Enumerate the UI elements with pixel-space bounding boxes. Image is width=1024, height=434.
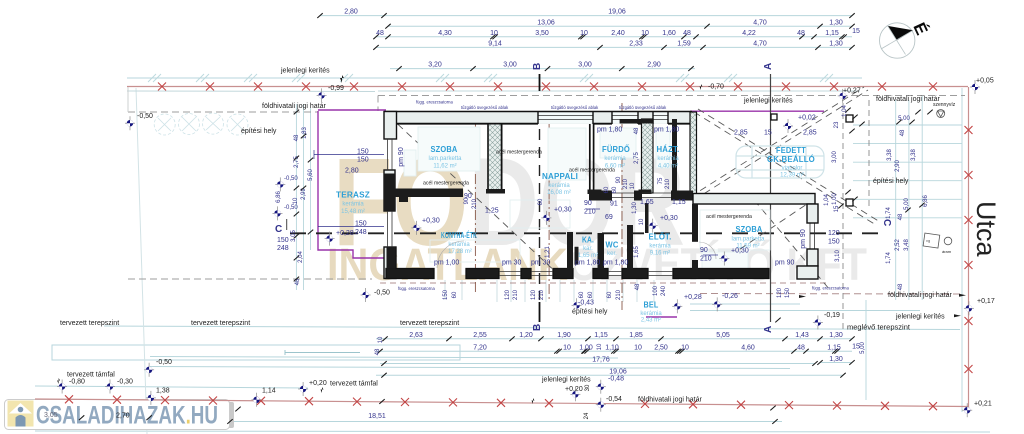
svg-text:60: 60 — [604, 186, 610, 193]
svg-text:120: 120 — [505, 289, 511, 300]
svg-text:60: 60 — [607, 291, 613, 298]
svg-text:földhivatali jogi határ: földhivatali jogi határ — [262, 103, 326, 110]
svg-text:60: 60 — [538, 198, 544, 205]
svg-text:tűzgátló üvegezésű ablak: tűzgátló üvegezésű ablak — [461, 105, 509, 110]
svg-text:SZOBA: SZOBA — [431, 145, 458, 154]
svg-text:földhivatali jogi határ: földhivatali jogi határ — [638, 397, 702, 404]
svg-text:1,65: 1,65 — [640, 199, 654, 206]
svg-text:BEL: BEL — [644, 301, 659, 310]
svg-text:acél mestergerenda: acél mestergerenda — [706, 214, 752, 220]
svg-text:lam.parketta: lam.parketta — [428, 156, 462, 162]
svg-text:15: 15 — [764, 130, 772, 137]
svg-text:2,63: 2,63 — [409, 332, 423, 339]
svg-text:1,30: 1,30 — [632, 202, 638, 214]
svg-text:75: 75 — [658, 177, 664, 184]
svg-text:-0,54: -0,54 — [606, 396, 622, 403]
svg-text:vg: vg — [926, 238, 930, 243]
svg-text:pm 1,80: pm 1,80 — [597, 127, 622, 134]
svg-text:150: 150 — [785, 287, 791, 298]
svg-text:kerámia: kerámia — [548, 183, 570, 189]
svg-text:-0,50: -0,50 — [284, 205, 298, 211]
svg-text:5,05: 5,05 — [716, 332, 730, 339]
svg-text:kerámia: kerámia — [649, 244, 671, 250]
svg-text:11,62 m²: 11,62 m² — [433, 164, 456, 170]
svg-text:150: 150 — [277, 237, 289, 244]
svg-text:1,43: 1,43 — [795, 332, 809, 339]
svg-text:69: 69 — [605, 214, 613, 221]
svg-text:pm 30: pm 30 — [531, 260, 551, 267]
svg-text:-0,99: -0,99 — [328, 85, 344, 92]
svg-text:+0,05: +0,05 — [976, 78, 994, 85]
svg-text:3,00: 3,00 — [832, 151, 838, 163]
svg-text:210: 210 — [472, 198, 478, 209]
svg-text:120: 120 — [777, 287, 783, 298]
svg-text:meglévő terepszint: meglévő terepszint — [847, 323, 911, 332]
svg-text:1,00: 1,00 — [579, 345, 593, 352]
svg-text:10: 10 — [630, 182, 636, 189]
svg-text:210: 210 — [513, 289, 519, 300]
svg-text:lam.parketta: lam.parketta — [731, 237, 765, 243]
svg-text:2,04: 2,04 — [298, 251, 304, 263]
svg-text:240: 240 — [661, 285, 667, 296]
svg-text:210: 210 — [700, 256, 712, 263]
svg-text:1,38: 1,38 — [156, 388, 170, 395]
svg-text:150: 150 — [443, 289, 449, 300]
svg-text:függ. ereszcsatorna: függ. ereszcsatorna — [398, 286, 435, 291]
svg-text:60: 60 — [588, 291, 594, 298]
svg-text:tűzgátló üvegezésű ablak: tűzgátló üvegezésű ablak — [551, 105, 599, 110]
svg-text:5,60: 5,60 — [308, 169, 314, 181]
svg-text:248: 248 — [277, 245, 289, 252]
svg-text:120: 120 — [531, 289, 537, 300]
svg-text:földhivatali jogi határ: földhivatali jogi határ — [888, 292, 952, 299]
svg-text:pm 90: pm 90 — [775, 260, 795, 267]
svg-text:30: 30 — [585, 384, 591, 391]
svg-text:+0,28: +0,28 — [336, 230, 354, 237]
svg-text:pm 1,80: pm 1,80 — [603, 260, 628, 267]
svg-text:+0,27: +0,27 — [843, 88, 861, 95]
svg-text:3,48: 3,48 — [904, 239, 910, 251]
svg-text:210: 210 — [665, 178, 671, 189]
svg-text:48: 48 — [898, 283, 904, 290]
svg-text:1,00: 1,00 — [832, 193, 838, 205]
svg-text:48: 48 — [797, 345, 805, 352]
svg-text:2,40: 2,40 — [611, 30, 625, 37]
svg-text:-0,50: -0,50 — [284, 176, 298, 182]
svg-text:4,60: 4,60 — [741, 345, 755, 352]
svg-text:tervezett terepszint: tervezett terepszint — [60, 320, 119, 327]
svg-text:C: C — [881, 219, 892, 226]
svg-text:1,74: 1,74 — [886, 207, 892, 219]
svg-text:1,30: 1,30 — [829, 332, 843, 339]
svg-text:kar.: kar. — [583, 246, 593, 252]
svg-text:150: 150 — [357, 157, 369, 164]
svg-text:HÁZT.: HÁZT. — [657, 145, 680, 154]
svg-text:2,80: 2,80 — [345, 168, 359, 175]
svg-text:120: 120 — [828, 230, 840, 237]
svg-text:pm 1,80: pm 1,80 — [575, 260, 600, 267]
svg-text:3,05: 3,05 — [44, 412, 58, 419]
svg-text:17,28 m²: 17,28 m² — [448, 249, 472, 255]
svg-text:KONYHA-ÉTK: KONYHA-ÉTK — [441, 231, 477, 240]
svg-text:10: 10 — [597, 343, 603, 350]
svg-text:1,30: 1,30 — [829, 41, 843, 48]
svg-text:5,00: 5,00 — [860, 342, 866, 354]
svg-text:-0,70: -0,70 — [708, 84, 724, 91]
svg-text:1,25: 1,25 — [485, 208, 499, 215]
svg-text:kerámia: kerámia — [448, 242, 470, 248]
svg-text:10: 10 — [293, 197, 299, 204]
svg-text:24: 24 — [584, 412, 590, 419]
svg-text:90: 90 — [464, 197, 470, 204]
svg-text:10: 10 — [641, 30, 649, 37]
svg-text:4,70: 4,70 — [753, 19, 767, 26]
svg-text:1,04: 1,04 — [824, 194, 830, 206]
svg-text:viacolor: viacolor — [782, 166, 803, 172]
svg-text:48: 48 — [797, 30, 805, 37]
svg-text:-0,50: -0,50 — [137, 113, 153, 120]
svg-text:kerámia: kerámia — [342, 202, 364, 208]
svg-text:1,59: 1,59 — [677, 41, 691, 48]
svg-text:10: 10 — [634, 345, 642, 352]
svg-text:4,22: 4,22 — [742, 30, 756, 37]
svg-text:1,30: 1,30 — [829, 19, 843, 26]
svg-text:FEDETT: FEDETT — [776, 146, 806, 155]
svg-text:FÜRDŐ: FÜRDŐ — [602, 145, 630, 154]
svg-text:2,90: 2,90 — [895, 160, 901, 172]
svg-text:19,06: 19,06 — [609, 368, 627, 375]
svg-text:1,15: 1,15 — [827, 345, 841, 352]
svg-text:-0,48: -0,48 — [608, 375, 624, 382]
svg-text:1,30: 1,30 — [829, 356, 843, 363]
svg-text:+0,02: +0,02 — [798, 115, 816, 122]
svg-text:-0,19: -0,19 — [824, 312, 840, 319]
svg-text:48: 48 — [634, 127, 640, 134]
svg-text:10: 10 — [681, 345, 689, 352]
svg-text:pm 90: pm 90 — [398, 147, 405, 167]
svg-text:+0,30: +0,30 — [554, 207, 572, 214]
svg-text:-0,50: -0,50 — [156, 359, 172, 366]
svg-text:függ. ereszcsatorna: függ. ereszcsatorna — [812, 286, 849, 291]
svg-text:áram: áram — [942, 249, 952, 254]
svg-text:2,85: 2,85 — [734, 130, 748, 137]
svg-text:TERASZ: TERASZ — [336, 191, 370, 200]
svg-text:Utca: Utca — [971, 201, 1001, 258]
svg-text:48: 48 — [376, 30, 384, 37]
svg-text:1,14: 1,14 — [262, 388, 276, 395]
svg-text:szennyvíz: szennyvíz — [933, 102, 956, 108]
svg-text:23: 23 — [834, 121, 840, 128]
svg-text:1,10: 1,10 — [605, 345, 619, 352]
svg-text:SZOBA: SZOBA — [736, 225, 763, 234]
svg-text:1,20: 1,20 — [519, 332, 533, 339]
svg-text:48: 48 — [900, 129, 906, 136]
svg-text:+0,20: +0,20 — [309, 380, 327, 387]
svg-text:földhivatali jogi határ: földhivatali jogi határ — [876, 96, 940, 103]
svg-text:10: 10 — [563, 345, 571, 352]
svg-text:1,65 m²: 1,65 m² — [578, 253, 598, 259]
svg-text:210: 210 — [539, 289, 545, 300]
svg-text:KA.: KA. — [582, 236, 594, 245]
svg-text:1,90: 1,90 — [557, 332, 571, 339]
svg-text:2,75: 2,75 — [634, 152, 640, 164]
svg-text:1,74: 1,74 — [886, 252, 892, 264]
svg-text:acél mestergerenda: acél mestergerenda — [496, 150, 542, 156]
svg-text:tervezett támfal: tervezett támfal — [330, 381, 378, 388]
svg-text:2,33: 2,33 — [629, 41, 643, 48]
svg-text:+0,30: +0,30 — [660, 215, 678, 222]
svg-text:acél mestergerenda: acél mestergerenda — [423, 181, 469, 187]
svg-text:48: 48 — [635, 283, 641, 290]
svg-text:2,90: 2,90 — [647, 61, 661, 68]
svg-text:4,30: 4,30 — [438, 30, 452, 37]
svg-text:+0,17: +0,17 — [977, 298, 995, 305]
svg-text:A: A — [763, 326, 774, 333]
svg-text:90: 90 — [584, 200, 592, 207]
svg-text:jelenlegi kerítés: jelenlegi kerítés — [743, 98, 793, 105]
svg-text:9,14: 9,14 — [488, 41, 502, 48]
svg-text:+0,21: +0,21 — [974, 401, 992, 408]
svg-text:15: 15 — [834, 205, 840, 212]
svg-text:tervezett támfal: tervezett támfal — [67, 372, 115, 379]
svg-text:1,15: 1,15 — [825, 30, 839, 37]
svg-text:48: 48 — [898, 213, 904, 220]
svg-text:13,06: 13,06 — [537, 19, 555, 26]
svg-text:acél mestergerenda: acél mestergerenda — [569, 168, 615, 174]
svg-text:ker.: ker. — [607, 251, 617, 257]
svg-text:1,60: 1,60 — [662, 30, 676, 37]
svg-text:-0,26: -0,26 — [722, 293, 738, 300]
svg-text:2,85: 2,85 — [803, 130, 817, 137]
svg-text:16,08 m²: 16,08 m² — [547, 190, 571, 196]
svg-text:-0,30: -0,30 — [117, 379, 133, 386]
svg-text:10: 10 — [378, 336, 384, 343]
svg-text:2,52: 2,52 — [895, 239, 901, 251]
svg-text:15,48 m²: 15,48 m² — [341, 209, 365, 215]
svg-text:kerámia: kerámia — [657, 156, 679, 162]
svg-text:48: 48 — [683, 30, 691, 37]
svg-text:60: 60 — [612, 186, 618, 193]
svg-text:építési hely: építési hely — [572, 309, 608, 316]
svg-text:10: 10 — [639, 218, 645, 225]
svg-text:kerámia: kerámia — [640, 311, 662, 317]
svg-text:91: 91 — [610, 201, 618, 208]
svg-text:kerámia: kerámia — [604, 156, 626, 162]
svg-text:12,39 m²: 12,39 m² — [780, 173, 804, 179]
svg-text:tűzgátló üvegezésű ablak: tűzgátló üvegezésű ablak — [619, 105, 667, 110]
svg-text:2,70: 2,70 — [116, 413, 130, 420]
svg-text:10: 10 — [580, 30, 588, 37]
svg-text:építési hely: építési hely — [241, 128, 277, 135]
svg-text:3,20: 3,20 — [428, 61, 442, 68]
svg-text:10: 10 — [490, 30, 498, 37]
svg-text:pm 30: pm 30 — [502, 260, 522, 267]
svg-text:3,00: 3,00 — [578, 61, 592, 68]
svg-text:1,15: 1,15 — [594, 332, 608, 339]
svg-text:-0,50: -0,50 — [374, 290, 390, 297]
svg-text:tervezett terepszint: tervezett terepszint — [191, 320, 250, 327]
svg-text:4,70: 4,70 — [753, 41, 767, 48]
svg-text:A: A — [763, 63, 774, 70]
svg-text:1,85: 1,85 — [629, 332, 643, 339]
svg-text:9,16 m²: 9,16 m² — [650, 251, 670, 257]
svg-text:B: B — [532, 63, 543, 70]
svg-text:3,50: 3,50 — [535, 30, 549, 37]
svg-text:7,20: 7,20 — [473, 345, 487, 352]
svg-text:+0,28: +0,28 — [684, 294, 702, 301]
svg-text:2,80: 2,80 — [344, 9, 358, 16]
svg-text:jelenlegi kerítés: jelenlegi kerítés — [280, 68, 330, 75]
svg-text:11,59 m²: 11,59 m² — [736, 244, 759, 250]
svg-text:6,86: 6,86 — [276, 191, 282, 203]
svg-text:17,76: 17,76 — [592, 357, 610, 364]
svg-text:60: 60 — [452, 291, 458, 298]
svg-text:100: 100 — [653, 285, 659, 296]
svg-text:ELŐT.: ELŐT. — [649, 233, 672, 242]
svg-text:6,86: 6,86 — [923, 195, 929, 207]
svg-text:1,65: 1,65 — [634, 246, 640, 258]
svg-text:C: C — [275, 224, 282, 235]
svg-text:3,38: 3,38 — [911, 149, 917, 161]
svg-text:tervezett terepszint: tervezett terepszint — [400, 320, 459, 327]
svg-text:függ. ereszcsatorna: függ. ereszcsatorna — [416, 100, 453, 105]
svg-text:GK.BEÁLLÓ: GK.BEÁLLÓ — [767, 155, 815, 164]
svg-text:2,55: 2,55 — [473, 332, 487, 339]
svg-text:18,51: 18,51 — [368, 413, 386, 420]
svg-text:19,06: 19,06 — [608, 9, 626, 16]
svg-text:150: 150 — [828, 239, 840, 246]
svg-text:WC: WC — [606, 241, 619, 250]
svg-text:1,15: 1,15 — [672, 199, 686, 206]
svg-text:jelenlegi kerítés: jelenlegi kerítés — [541, 377, 591, 384]
svg-text:15: 15 — [852, 344, 860, 351]
svg-text:1,21: 1,21 — [545, 246, 551, 258]
svg-text:210: 210 — [623, 178, 629, 189]
svg-text:építési hely: építési hely — [873, 178, 909, 185]
svg-text:5,00: 5,00 — [904, 198, 910, 210]
svg-text:jelenlegi kerítés: jelenlegi kerítés — [895, 314, 945, 321]
svg-text:pm 90: pm 90 — [800, 229, 807, 249]
svg-text:2,50: 2,50 — [654, 345, 668, 352]
svg-text:60: 60 — [579, 291, 585, 298]
svg-text:248: 248 — [355, 229, 367, 236]
svg-text:3,00: 3,00 — [503, 61, 517, 68]
svg-text:pm 1,80: pm 1,80 — [654, 127, 679, 134]
svg-text:B: B — [532, 324, 543, 331]
svg-text:210: 210 — [616, 289, 622, 300]
svg-text:90: 90 — [700, 247, 708, 254]
svg-text:-0,80: -0,80 — [69, 379, 85, 386]
svg-text:90: 90 — [616, 176, 622, 183]
svg-text:2,43 m²: 2,43 m² — [641, 318, 661, 324]
svg-text:48: 48 — [375, 348, 381, 355]
svg-text:4,40 m²: 4,40 m² — [658, 164, 678, 170]
svg-text:3,10: 3,10 — [835, 250, 841, 262]
svg-text:3,38: 3,38 — [887, 149, 893, 161]
svg-text:210: 210 — [584, 209, 596, 216]
svg-text:+0,30: +0,30 — [422, 218, 440, 225]
svg-text:15: 15 — [852, 28, 860, 35]
svg-text:48: 48 — [294, 134, 300, 141]
